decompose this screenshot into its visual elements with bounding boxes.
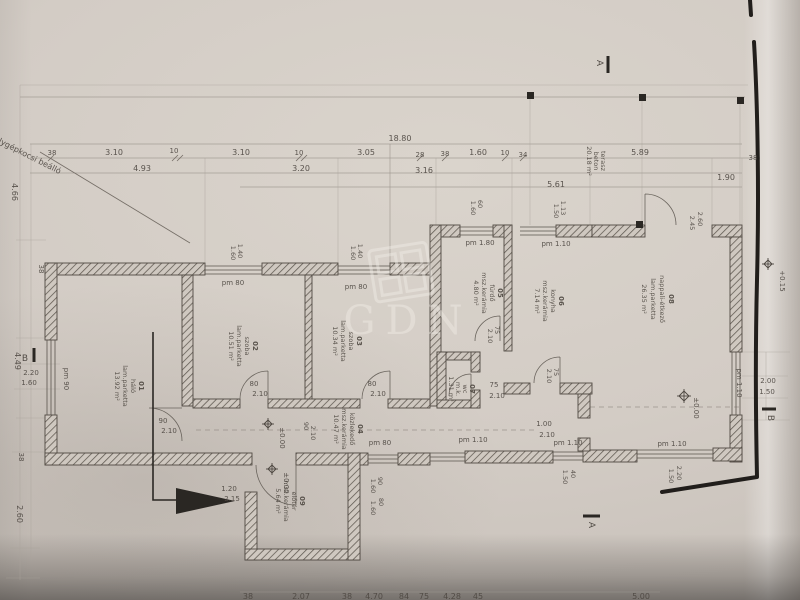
window-label: pm 1.10 (541, 240, 570, 248)
dim: 3.10 (105, 148, 123, 157)
svg-text:7.14 m²: 7.14 m² (533, 288, 541, 314)
level-label: ±0.00 (278, 427, 286, 448)
svg-text:08: 08 (667, 294, 675, 304)
dim: 45 (473, 592, 483, 600)
svg-text:01: 01 (137, 381, 145, 391)
dim: 2.45 (688, 216, 696, 230)
window-label: pm 1.10 (657, 440, 686, 448)
dim: 1.60 (349, 246, 357, 260)
dim: 1.50 (552, 204, 560, 218)
svg-text:10.34 m²: 10.34 m² (331, 326, 339, 356)
level-symbol (262, 418, 274, 430)
svg-text:nappali-étkező: nappali-étkező (658, 275, 667, 323)
dim: 75 (419, 592, 429, 600)
parking-note: 1 db személygépkocsi beálló (0, 115, 63, 176)
dim: 1.90 (717, 173, 735, 182)
room-label-kozlekedo: 04 közlekedő msz.kerámia 10.47 m² (332, 408, 364, 450)
dim: 5.89 (631, 148, 649, 157)
svg-text:msz.kerámia: msz.kerámia (541, 280, 549, 322)
door-label: 2.10 (309, 426, 317, 440)
dim: 84 (399, 592, 409, 600)
door-label: 90 (159, 417, 168, 425)
room-label-furdo: 05 fürdő msz.kerámia 4.80 m² (472, 272, 504, 314)
dim: 2.60 (15, 505, 24, 523)
dim: 2.20 (23, 369, 39, 377)
gdn-watermark-text: GDN (343, 298, 472, 344)
dim: 4.28 (443, 592, 461, 600)
dim: 2.20 (675, 466, 683, 480)
svg-text:10.47 m²: 10.47 m² (332, 414, 340, 444)
dim: 40 (569, 470, 577, 478)
svg-text:1.31 m²: 1.31 m² (447, 376, 455, 402)
door-label: 1.20 (221, 485, 237, 493)
dim: 38 (441, 150, 450, 158)
door-label: 1.00 (536, 420, 552, 428)
dim: 10 (170, 147, 179, 155)
svg-text:lam.parketta: lam.parketta (649, 278, 657, 320)
window-label: pm 1.80 (465, 239, 494, 247)
dim: 4.49 (13, 352, 22, 370)
door-label: 2.10 (486, 329, 494, 343)
svg-text:msz.kerámia: msz.kerámia (480, 272, 488, 314)
property-boundary-line (662, 0, 758, 492)
svg-text:5.64 m²: 5.64 m² (274, 488, 282, 514)
svg-text:4.80 m²: 4.80 m² (472, 280, 480, 306)
svg-text:06: 06 (557, 296, 565, 306)
dim: 3.10 (232, 148, 250, 157)
floor-plan-photo: A A B B 18.80 38 3.10 10 3.10 10 3.05 28… (0, 0, 800, 600)
door-label: 2.15 (224, 495, 240, 503)
dim: 38 (48, 149, 57, 157)
svg-text:előtér: előtér (290, 491, 299, 510)
dim: 3.20 (292, 164, 310, 173)
svg-text:lam.parketta: lam.parketta (121, 365, 129, 407)
dim: 1.60 (369, 501, 377, 515)
door-label: 75 (490, 381, 499, 389)
dim: 5.61 (547, 180, 565, 189)
section-a-top: A (594, 60, 604, 67)
svg-text:09: 09 (298, 496, 306, 506)
door-label: 2.10 (539, 431, 555, 439)
dim: 1.50 (759, 388, 775, 396)
room-label-eloter: 09 előtér msz.kerámia 5.64 m² (274, 480, 306, 522)
svg-text:konyha: konyha (549, 289, 557, 313)
dim: 3.16 (415, 166, 433, 175)
svg-text:05: 05 (496, 288, 504, 298)
level-symbol (266, 463, 278, 475)
dim: 1.60 (369, 479, 377, 493)
svg-text:02: 02 (251, 341, 259, 351)
dim: 10 (295, 149, 304, 157)
svg-text:fürdő: fürdő (488, 284, 497, 301)
section-b-right: B (765, 415, 775, 421)
dim: 5.00 (632, 592, 650, 600)
level-label: +0.15 (778, 270, 786, 291)
dim: 1.50 (561, 470, 569, 484)
door-label: 80 (368, 380, 377, 388)
dim: 1.50 (667, 469, 675, 483)
door-label: 90 (302, 422, 310, 430)
walls (45, 225, 742, 560)
door-label: 2.10 (370, 390, 386, 398)
dim: 1.60 (229, 246, 237, 260)
window-label: pm 1.10 (553, 439, 582, 447)
dim: 4.93 (133, 164, 151, 173)
svg-text:04: 04 (356, 424, 364, 434)
svg-text:13.92 m²: 13.92 m² (113, 371, 121, 401)
room-label-halo: 01 háló lam.parketta 13.92 m² (113, 365, 145, 407)
dim-overall: 18.80 (389, 134, 412, 143)
svg-text:háló: háló (129, 379, 137, 393)
windows (47, 227, 740, 463)
dim: 38 (342, 592, 352, 600)
level-label: ±0.00 (692, 397, 700, 418)
level-symbol (762, 258, 774, 270)
dim: 2.07 (292, 592, 310, 600)
dim: 80 (377, 498, 385, 506)
room-label-nappali: 08 nappali-étkező lam.parketta 26.35 m² (640, 275, 675, 323)
dim: 10 (501, 149, 510, 157)
svg-text:msz.kerámia: msz.kerámia (282, 480, 290, 522)
dim: 38 (749, 154, 758, 162)
dim: 2.00 (760, 377, 776, 385)
dim: 1.60 (469, 148, 487, 157)
window-label: pm 1.10 (458, 436, 487, 444)
dim: 38 (243, 592, 253, 600)
door-label: 2.10 (161, 427, 177, 435)
window-label: pm 90 (62, 368, 70, 390)
window-label: pm 80 (369, 439, 391, 447)
room-label-konyha: 06 konyha msz.kerámia 7.14 m² (533, 280, 565, 322)
dim: 4.70 (365, 592, 383, 600)
dim: 1.60 (469, 201, 477, 215)
door-label: 2.10 (252, 390, 268, 398)
room-label-terasz: terasz beton 20.18 m² (585, 146, 607, 176)
svg-text:26.35 m²: 26.35 m² (640, 284, 648, 314)
dim: 1.60 (21, 379, 37, 387)
dim: 2.60 (696, 212, 704, 226)
door-label: 80 (250, 380, 259, 388)
dim: 28 (416, 151, 425, 159)
window-label: pm 1.10 (735, 368, 743, 397)
dim: 4.66 (10, 183, 19, 201)
door-label: 2.10 (489, 392, 505, 400)
svg-text:10.51 m²: 10.51 m² (227, 331, 235, 361)
dim: 34 (519, 151, 528, 159)
svg-text:közlekedő: közlekedő (348, 413, 357, 445)
window-label: pm 80 (345, 283, 367, 291)
svg-text:szoba: szoba (243, 337, 251, 356)
dim: 38 (37, 265, 45, 274)
svg-text:20.18 m²: 20.18 m² (585, 146, 593, 176)
svg-text:msz.kerámia: msz.kerámia (340, 408, 348, 450)
svg-text:lam.parketta: lam.parketta (235, 325, 243, 367)
level-symbol (677, 389, 691, 403)
floor-plan-drawing: A A B B 18.80 38 3.10 10 3.10 10 3.05 28… (0, 0, 800, 600)
door-label: 2.10 (545, 369, 553, 383)
section-a-bottom: A (586, 522, 596, 529)
room-label-szoba-02: 02 szoba lam.parketta 10.51 m² (227, 325, 259, 367)
dim: 38 (17, 453, 25, 462)
dim: 3.05 (357, 148, 375, 157)
window-label: pm 80 (222, 279, 244, 287)
